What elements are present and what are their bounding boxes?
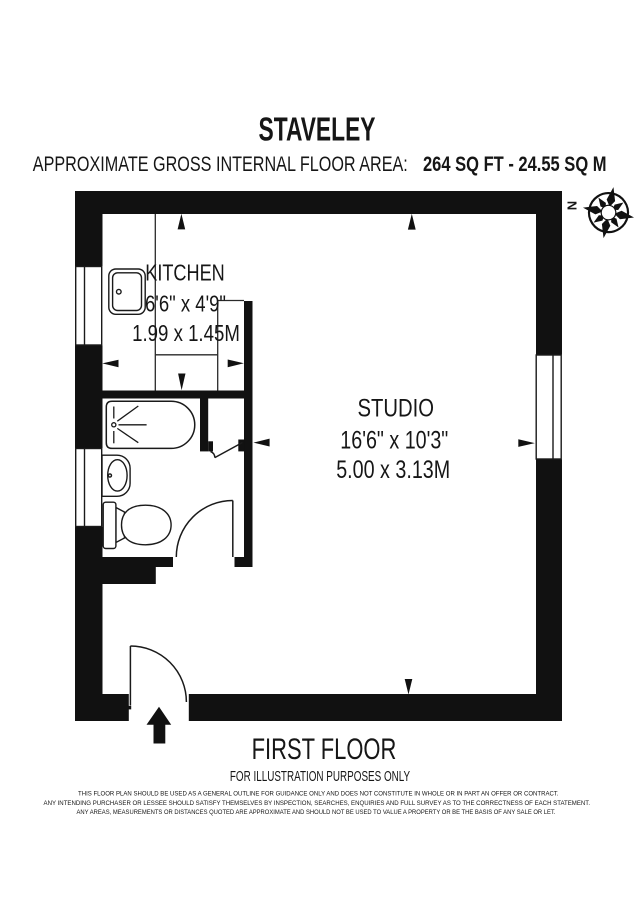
svg-text:STAVELEY: STAVELEY	[259, 111, 376, 148]
svg-text:5.00 x 3.13M: 5.00 x 3.13M	[336, 456, 450, 484]
svg-text:KITCHEN: KITCHEN	[145, 260, 225, 286]
svg-text:FOR ILLUSTRATION PURPOSES ONLY: FOR ILLUSTRATION PURPOSES ONLY	[230, 768, 410, 785]
svg-text:STUDIO: STUDIO	[358, 395, 435, 423]
svg-text:6'6" x 4'9": 6'6" x 4'9"	[145, 291, 226, 317]
svg-text:N: N	[564, 201, 579, 210]
svg-text:FIRST FLOOR: FIRST FLOOR	[252, 733, 397, 766]
svg-text:ANY INTENDING PURCHASER OR LES: ANY INTENDING PURCHASER OR LESSEE SHOULD…	[44, 800, 591, 807]
svg-text:APPROXIMATE GROSS INTERNAL FLO: APPROXIMATE GROSS INTERNAL FLOOR AREA:	[33, 153, 408, 176]
svg-text:264 SQ FT - 24.55 SQ M: 264 SQ FT - 24.55 SQ M	[423, 153, 607, 176]
svg-text:1.99 x 1.45M: 1.99 x 1.45M	[132, 320, 240, 346]
svg-text:ANY AREAS, MEASUREMENTS OR DIS: ANY AREAS, MEASUREMENTS OR DISTANCES QUO…	[77, 809, 556, 816]
svg-text:16'6" x 10'3": 16'6" x 10'3"	[340, 427, 448, 455]
svg-text:THIS FLOOR PLAN SHOULD BE USED: THIS FLOOR PLAN SHOULD BE USED AS A GENE…	[78, 790, 559, 797]
